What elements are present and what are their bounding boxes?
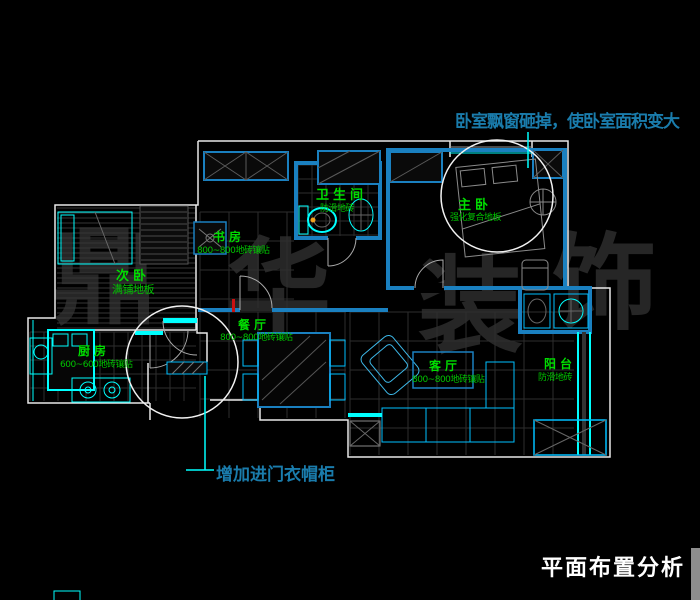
- room-note-bathroom: 防滑地砖: [320, 201, 354, 214]
- floor-plan-drawing: [0, 0, 700, 600]
- annotation-entry-closet: 增加进门衣帽柜: [216, 460, 335, 485]
- drawing-fragment: [54, 591, 80, 600]
- cad-canvas: 鼎 华 装 饰: [0, 0, 700, 600]
- bedroom2-dresser: [140, 206, 188, 264]
- balcony-elements: [534, 332, 606, 455]
- room-note-living: 800~800地砖镶贴: [412, 372, 484, 385]
- room-note-kitchen: 600~600地砖镶贴: [60, 357, 132, 370]
- wardrobes: [204, 150, 563, 184]
- room-note-study: 800~800地砖镶贴: [197, 243, 269, 256]
- room-note-balcony: 防滑地砖: [538, 370, 572, 383]
- room-note-dining: 800~800地砖镶贴: [220, 330, 292, 343]
- small-bath-fixtures: [524, 294, 588, 328]
- annotation-bay-window: 卧室飘窗砸掉，使卧室面积变大: [455, 107, 679, 132]
- drawing-title: 平面布置分析: [541, 550, 685, 582]
- master-door-gap: [414, 283, 444, 293]
- room-note-bedroom2: 满铺地板: [112, 281, 154, 297]
- master-chair: [522, 260, 548, 290]
- room-note-master: 强化复合地板: [450, 210, 501, 223]
- living-armchair: [359, 333, 422, 397]
- scrollbar-fragment[interactable]: [691, 548, 700, 600]
- dining-set: [243, 333, 345, 407]
- tv-cabinet: [348, 415, 382, 446]
